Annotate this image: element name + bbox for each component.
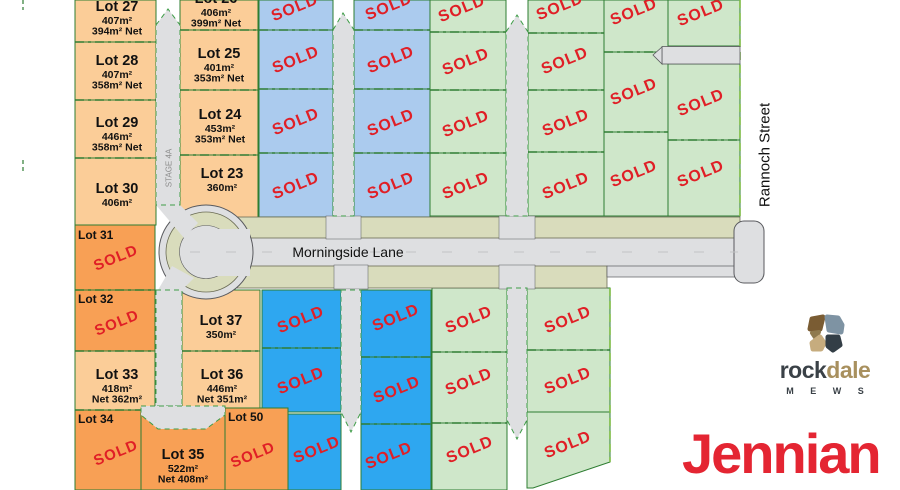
lot-area-label: Net 362m² — [92, 394, 143, 406]
road-northeast — [662, 47, 740, 65]
lot-number-label: Lot 24 — [199, 107, 242, 123]
lot-area-label: 353m² Net — [194, 73, 245, 85]
lot-area-label: 353m² Net — [195, 134, 246, 146]
access-lane — [333, 13, 354, 216]
lot-number-label: Lot 25 — [198, 46, 241, 62]
lot-number-label: Lot 35 — [162, 447, 205, 463]
rockdale-dale-text: dale — [826, 357, 870, 383]
lot-area-label: 358m² Net — [92, 142, 143, 154]
morningside-lane-label: Morningside Lane — [292, 244, 404, 260]
lot-number-label: Lot 26 — [195, 0, 238, 7]
lot-number-tag: Lot 31 — [78, 228, 114, 242]
subdivision-plan-svg: Morningside LaneRannoch StreetSTAGE 4ALo… — [0, 0, 900, 490]
lot-area-label: 360m² — [207, 182, 238, 194]
lane-opening — [499, 265, 535, 289]
lot-number-label: Lot 29 — [96, 115, 139, 131]
lane-opening — [326, 216, 361, 239]
lot-number-tag: Lot 34 — [78, 412, 114, 426]
lot-area-label: 358m² Net — [92, 80, 143, 92]
road-footpath-east — [607, 266, 740, 277]
lot-number-label: Lot 28 — [96, 53, 139, 69]
road-verge-south — [237, 266, 607, 288]
rockdale-rock-text: rock — [780, 357, 827, 383]
road-end-cap — [734, 221, 764, 283]
road-verge-north — [237, 217, 740, 238]
rockdale-wordmark: rockdale — [758, 359, 892, 382]
jennian-logo: Jennian — [682, 426, 880, 482]
lane-opening — [334, 265, 368, 289]
lane-opening — [499, 216, 535, 239]
rockdale-stones-icon — [802, 312, 848, 356]
lot-area-label: Net 408m² — [158, 474, 209, 486]
lot-number-tag: Lot 50 — [228, 410, 264, 424]
access-lane — [341, 290, 361, 432]
lot-area-label: 399m² Net — [191, 18, 242, 30]
stage-4a-label: STAGE 4A — [165, 148, 174, 187]
lot-area-label: Net 351m² — [197, 394, 248, 406]
lot-number-label: Lot 23 — [201, 166, 244, 182]
access-lane — [507, 288, 527, 439]
lot-number-tag: Lot 32 — [78, 292, 114, 306]
rockdale-mews-logo: rockdale M E W S — [758, 312, 892, 396]
subdivision-plan-page: Morningside LaneRannoch StreetSTAGE 4ALo… — [0, 0, 900, 490]
access-lane — [156, 290, 182, 406]
lot-area-label: 394m² Net — [92, 26, 143, 38]
lot-number-label: Lot 30 — [96, 181, 139, 197]
mews-text: M E W S — [758, 386, 892, 396]
lot-number-label: Lot 33 — [96, 367, 139, 383]
access-lane — [506, 15, 528, 216]
lot-number-label: Lot 37 — [200, 313, 243, 329]
rannoch-street-label: Rannoch Street — [757, 102, 774, 207]
lot-number-label: Lot 27 — [96, 0, 139, 15]
lot-area-label: 350m² — [206, 329, 237, 341]
lot-area-label: 406m² — [102, 197, 133, 209]
lot-number-label: Lot 36 — [201, 367, 244, 383]
